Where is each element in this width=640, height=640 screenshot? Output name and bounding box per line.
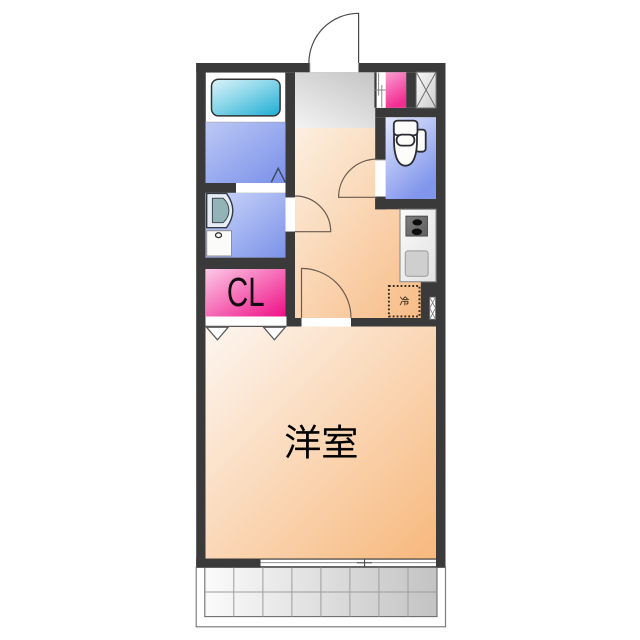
- svg-text:CL: CL: [227, 269, 265, 315]
